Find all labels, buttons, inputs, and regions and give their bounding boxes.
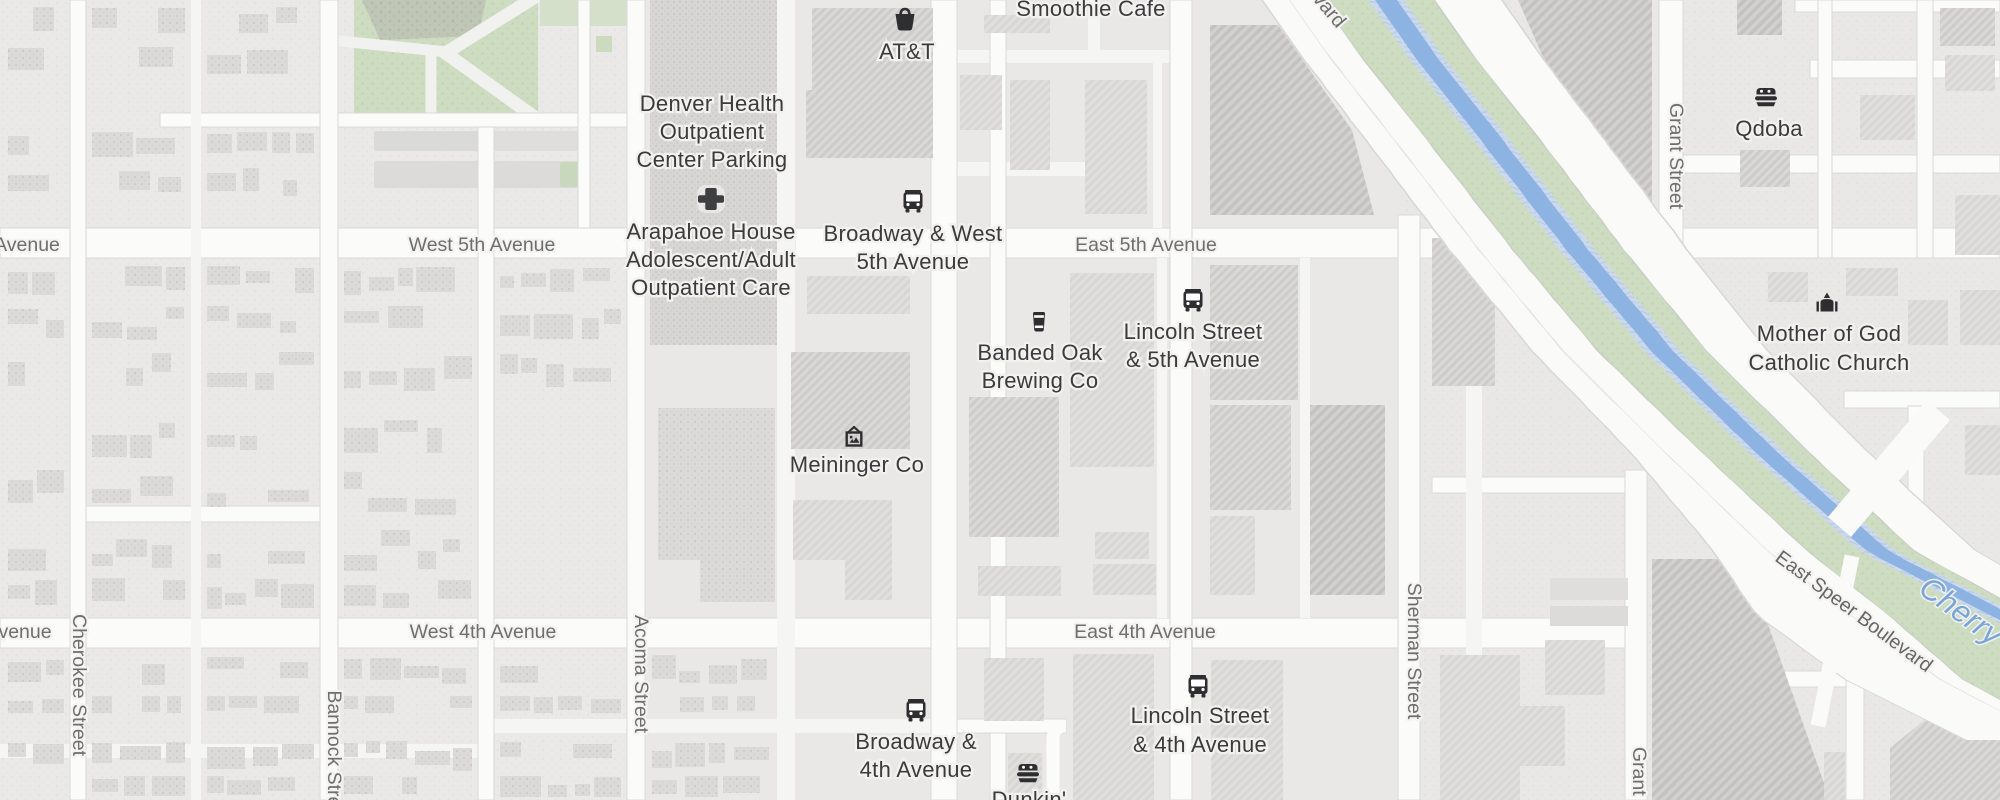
svg-text:Avenue: Avenue [0, 234, 60, 256]
svg-text:East 5th Avenue: East 5th Avenue [1075, 234, 1217, 256]
svg-text:Banded Oak: Banded Oak [977, 340, 1103, 365]
svg-text:Mother of God: Mother of God [1757, 321, 1902, 346]
svg-text:4th Avenue: 4th Avenue [860, 757, 973, 782]
svg-text:Arapahoe House: Arapahoe House [626, 219, 795, 244]
svg-text:Broadway &: Broadway & [855, 729, 977, 754]
svg-text:Center Parking: Center Parking [637, 147, 788, 172]
svg-text:Smoothie Cafe: Smoothie Cafe [1016, 0, 1165, 21]
svg-text:Grant Street: Grant Street [1665, 103, 1687, 210]
svg-text:East 4th Avenue: East 4th Avenue [1074, 621, 1216, 643]
svg-text:Catholic Church: Catholic Church [1748, 350, 1909, 375]
svg-text:5th Avenue: 5th Avenue [857, 249, 970, 274]
svg-text:Broadway & West: Broadway & West [824, 221, 1003, 246]
svg-text:AT&T: AT&T [879, 39, 935, 64]
svg-text:Meininger Co: Meininger Co [790, 452, 924, 477]
svg-text:West 4th Avenue: West 4th Avenue [410, 621, 557, 643]
svg-text:& 5th Avenue: & 5th Avenue [1126, 347, 1260, 372]
svg-text:West 5th Avenue: West 5th Avenue [409, 234, 556, 256]
svg-text:Grant Street: Grant Street [1628, 747, 1650, 800]
svg-text:Sherman Street: Sherman Street [1403, 583, 1425, 720]
svg-text:Acoma Street: Acoma Street [630, 615, 652, 734]
svg-text:Outpatient Care: Outpatient Care [631, 275, 791, 300]
svg-text:Lincoln Street: Lincoln Street [1124, 319, 1263, 344]
svg-text:venue: venue [0, 621, 52, 643]
svg-text:Outpatient: Outpatient [660, 119, 765, 144]
svg-text:Cherokee Street: Cherokee Street [68, 614, 90, 757]
svg-text:Dunkin': Dunkin' [992, 787, 1067, 800]
svg-text:Brewing Co: Brewing Co [982, 368, 1099, 393]
svg-text:& 4th Avenue: & 4th Avenue [1133, 732, 1267, 757]
svg-text:Adolescent/Adult: Adolescent/Adult [626, 247, 796, 272]
svg-text:Denver Health: Denver Health [640, 91, 785, 116]
svg-text:Lincoln Street: Lincoln Street [1131, 703, 1270, 728]
svg-text:Qdoba: Qdoba [1735, 116, 1803, 141]
svg-text:Bannock Street: Bannock Street [323, 690, 345, 800]
